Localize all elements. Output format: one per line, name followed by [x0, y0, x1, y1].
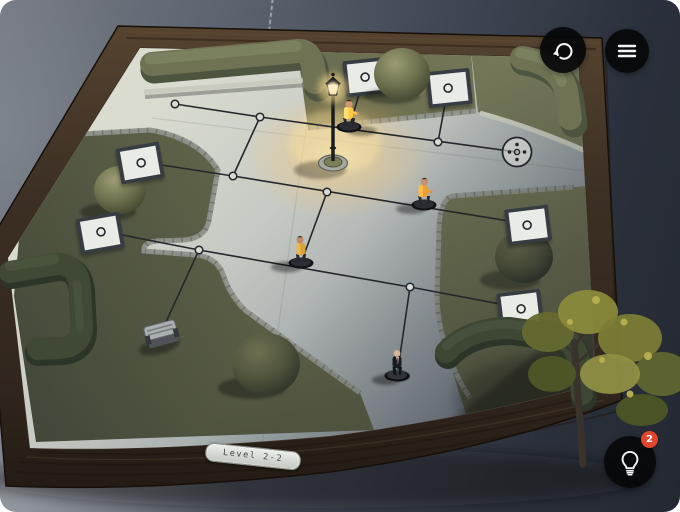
tile-node[interactable] [114, 141, 165, 187]
level-label: Level 2-2 [222, 448, 283, 464]
path-node[interactable] [229, 172, 237, 180]
hint-count: 2 [646, 434, 653, 445]
menu-button[interactable] [605, 29, 649, 73]
diorama [0, 0, 680, 512]
lightbulb-icon [613, 445, 647, 479]
tile-node[interactable] [74, 211, 125, 257]
path-node[interactable] [195, 246, 203, 254]
path-node[interactable] [406, 283, 414, 291]
menu-icon [611, 35, 643, 67]
tile-node[interactable] [503, 204, 552, 248]
tile-node[interactable] [424, 68, 473, 111]
restart-button[interactable] [540, 27, 586, 73]
path-node[interactable] [434, 138, 442, 146]
game-screen: 2 Level 2-2 [0, 0, 680, 512]
path-node[interactable] [256, 113, 264, 121]
path-node[interactable] [171, 100, 179, 108]
exit-node[interactable] [503, 138, 532, 167]
restart-icon [547, 34, 579, 66]
path-node[interactable] [323, 188, 331, 196]
hint-count-badge: 2 [641, 431, 658, 448]
